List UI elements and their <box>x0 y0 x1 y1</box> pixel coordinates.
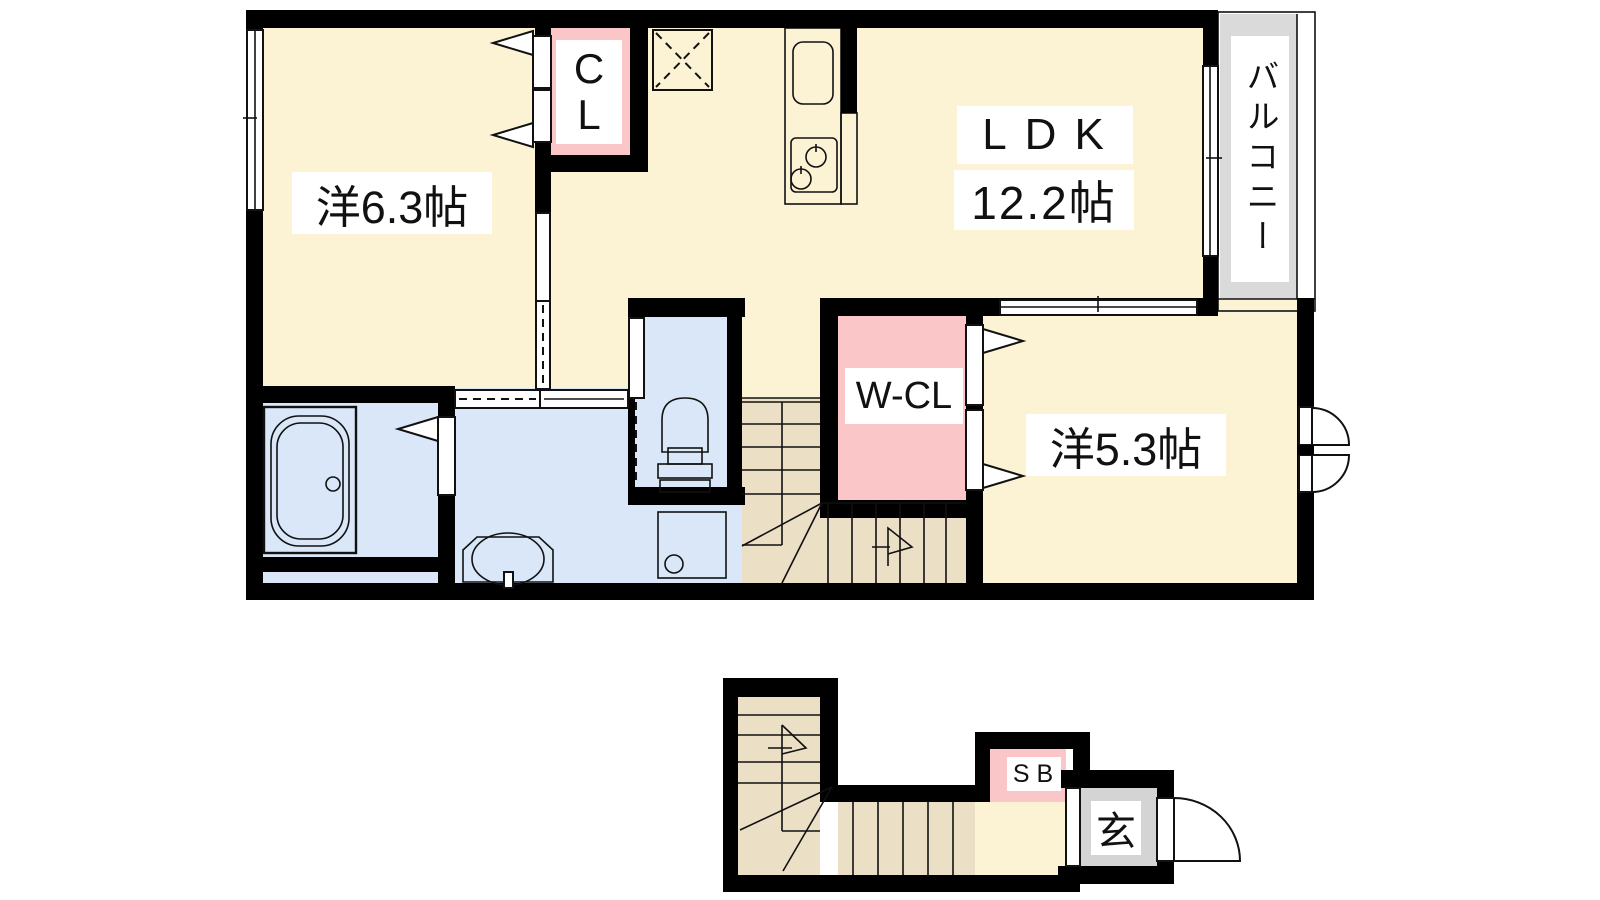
floor-plan-page: 洋6.3帖 C L LDK 12.2帖 W-CL 洋5.3帖 バルコニー SB … <box>0 0 1600 900</box>
shoe-box-label: SB <box>1007 757 1061 791</box>
window-balcony-sliding <box>1203 66 1222 256</box>
floor-plan-1f <box>723 678 1240 892</box>
entrance-door-swing <box>1174 798 1240 861</box>
stairs-1f-lower-floor <box>838 802 975 875</box>
entrance-step-edge <box>1066 788 1080 866</box>
entrance-label: 玄 <box>1091 801 1141 855</box>
room63-sliding-door <box>536 213 550 389</box>
closet-cl-label: C L <box>556 40 622 144</box>
walk-in-closet-label: W-CL <box>845 368 963 424</box>
window-room53-casement <box>1297 407 1349 492</box>
room-ldk-label: LDK <box>957 106 1133 164</box>
washroom-sliding-door <box>455 390 628 408</box>
floor-plan-drawing <box>0 0 1600 900</box>
stairs-1f-floor <box>738 697 820 875</box>
hallway-1f-floor <box>975 802 1080 875</box>
room-western-5-3-label: 洋5.3帖 <box>1026 414 1226 476</box>
balcony-label: バルコニー <box>1231 36 1289 282</box>
room-western-6-3-label: 洋6.3帖 <box>292 172 492 234</box>
entrance-door <box>1157 798 1240 861</box>
window-west-wall <box>243 30 263 210</box>
floor-plan-2f <box>243 10 1349 600</box>
entrance-door-leaf <box>1157 798 1174 861</box>
room-ldk-size-label: 12.2帖 <box>954 170 1134 230</box>
